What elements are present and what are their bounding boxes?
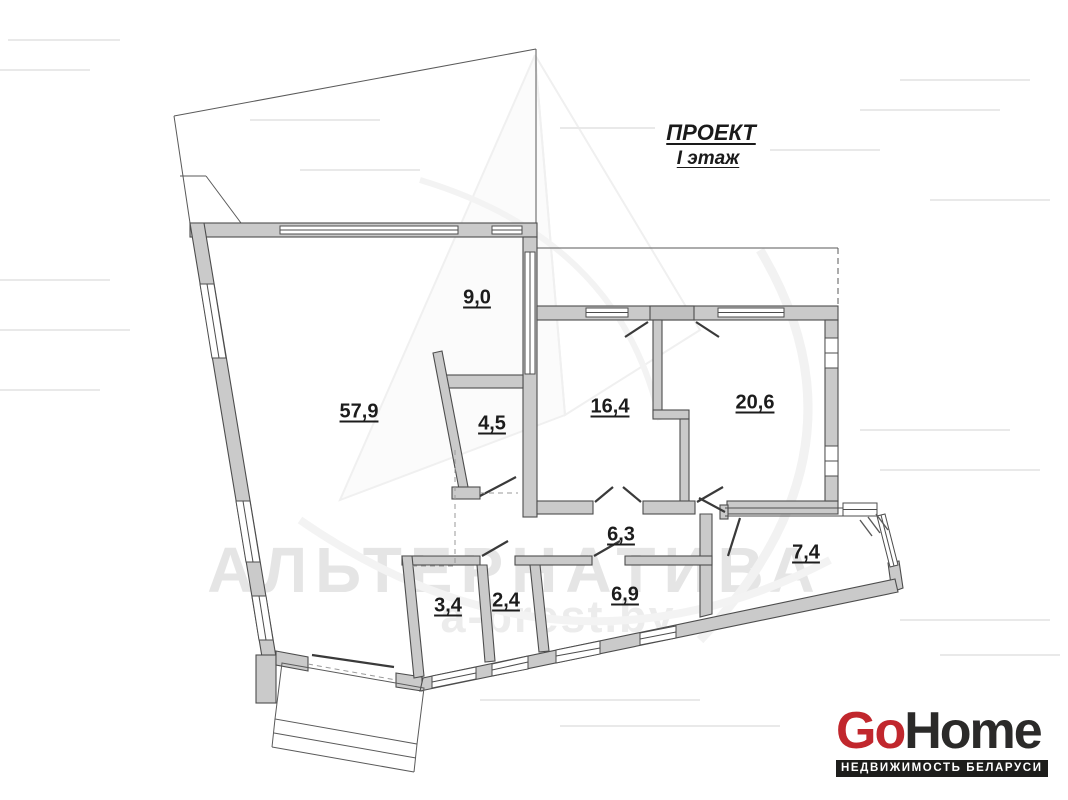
logo-home-text: Home [904, 702, 1040, 760]
room-area-7-4: 7,4 [792, 542, 820, 565]
room-area-3-4: 3,4 [434, 595, 462, 618]
room-area-57-9: 57,9 [340, 401, 379, 424]
logo-go-text: Go [836, 702, 904, 760]
room-area-9-0: 9,0 [463, 287, 491, 310]
room-area-20-6: 20,6 [736, 392, 775, 415]
gohome-logo: GoHome НЕДВИЖИМОСТЬ БЕЛАРУСИ [836, 705, 1048, 777]
room-area-4-5: 4,5 [478, 413, 506, 436]
plan-floor-subtitle: I этаж [677, 148, 740, 170]
floorplan-drawing [0, 0, 1068, 800]
floorplan-page: АЛЬТЕРНАТИВА a-brest.by [0, 0, 1068, 800]
gohome-logo-text: GoHome [836, 705, 1048, 757]
room-area-16-4: 16,4 [591, 396, 630, 419]
logo-tagline: НЕДВИЖИМОСТЬ БЕЛАРУСИ [836, 760, 1048, 777]
room-area-6-3: 6,3 [607, 524, 635, 547]
room-area-6-9: 6,9 [611, 584, 639, 607]
room-area-2-4: 2,4 [492, 590, 520, 613]
plan-title: ПРОЕКТ [666, 120, 756, 146]
